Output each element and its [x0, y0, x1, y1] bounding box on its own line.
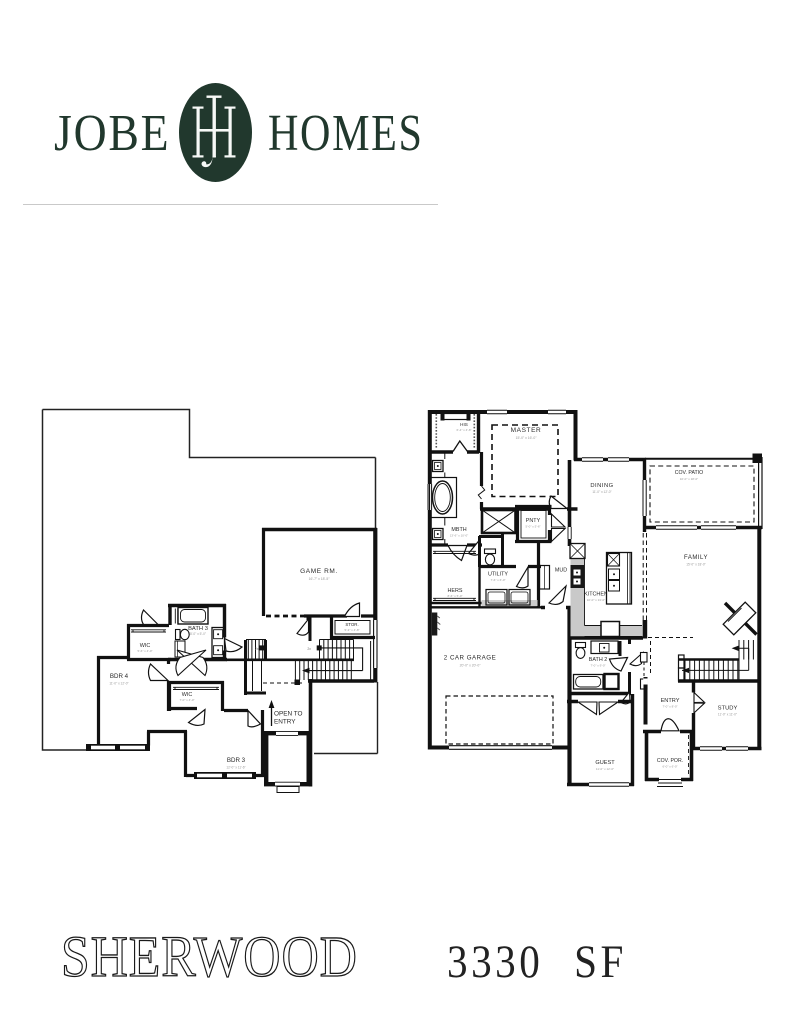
- svg-text:BDR 4: BDR 4: [110, 673, 129, 680]
- svg-text:5'-6" x 4'-0": 5'-6" x 4'-0": [137, 649, 152, 653]
- svg-text:7'-6" x 6'-0": 7'-6" x 6'-0": [490, 578, 505, 582]
- svg-text:11'-0" x 12'-0": 11'-0" x 12'-0": [596, 767, 614, 771]
- svg-text:UTILITY: UTILITY: [488, 572, 508, 578]
- svg-text:2 CAR GARAGE: 2 CAR GARAGE: [444, 655, 496, 662]
- svg-text:11'-0" x 11'-0": 11'-0" x 11'-0": [718, 713, 737, 717]
- svg-text:BDR 3: BDR 3: [227, 757, 246, 764]
- svg-text:COV. POR.: COV. POR.: [657, 758, 683, 764]
- svg-text:MASTER: MASTER: [511, 427, 542, 434]
- svg-text:HIS: HIS: [460, 422, 468, 427]
- svg-text:COV. PATIO: COV. PATIO: [675, 470, 703, 476]
- svg-text:2x: 2x: [255, 647, 259, 651]
- svg-text:PNTY: PNTY: [526, 518, 541, 524]
- svg-text:7'-0" x 8'-0": 7'-0" x 8'-0": [662, 705, 677, 709]
- svg-text:DINING: DINING: [590, 483, 613, 489]
- svg-text:KITCHEN: KITCHEN: [584, 592, 608, 598]
- svg-text:15'-0" x 18'-0": 15'-0" x 18'-0": [686, 563, 706, 567]
- svg-text:20'-0" x 20'-0": 20'-0" x 20'-0": [460, 664, 482, 668]
- svg-text:BATH 2: BATH 2: [589, 657, 607, 663]
- svg-text:12'-0" x 11'-6": 12'-0" x 11'-6": [226, 766, 245, 770]
- svg-text:STUDY: STUDY: [718, 706, 738, 712]
- svg-text:ENTRY: ENTRY: [274, 719, 296, 726]
- svg-text:GUEST: GUEST: [595, 760, 615, 766]
- svg-text:8'-6" x 5'-0": 8'-6" x 5'-0": [447, 594, 462, 598]
- svg-text:FAMILY: FAMILY: [684, 555, 708, 561]
- svg-text:7'-0" x 4'-0": 7'-0" x 4'-0": [179, 698, 194, 702]
- svg-text:MBTH: MBTH: [451, 527, 466, 533]
- svg-text:2x: 2x: [307, 647, 311, 651]
- svg-text:6'-4" x 4'-8": 6'-4" x 4'-8": [456, 428, 471, 432]
- svg-text:16'-7" x 18'-5": 16'-7" x 18'-5": [309, 577, 331, 581]
- svg-text:11'-0" x 12'-0": 11'-0" x 12'-0": [592, 490, 611, 494]
- svg-text:MUD: MUD: [555, 568, 567, 574]
- svg-text:5'-0" x 5'-6": 5'-0" x 5'-6": [525, 525, 540, 529]
- svg-text:7'-0" x 9'-0": 7'-0" x 9'-0": [590, 664, 605, 668]
- svg-text:10'-0" x 18'-0": 10'-0" x 18'-0": [680, 477, 698, 481]
- svg-text:5'-3" x 4'-8": 5'-3" x 4'-8": [344, 628, 359, 632]
- svg-text:GAME RM.: GAME RM.: [300, 568, 338, 575]
- svg-text:8'-0" x 5'-0": 8'-0" x 5'-0": [190, 632, 206, 636]
- svg-text:10'-0" x 13'-0": 10'-0" x 13'-0": [587, 598, 605, 602]
- svg-text:6'-0" x 6'-0": 6'-0" x 6'-0": [662, 765, 677, 769]
- svg-text:11'-0" x 12'-0": 11'-0" x 12'-0": [109, 682, 128, 686]
- svg-text:15'-0" x 16'-0": 15'-0" x 16'-0": [516, 436, 538, 440]
- svg-text:ENTRY: ENTRY: [661, 698, 680, 704]
- svg-text:OPEN TO: OPEN TO: [274, 711, 303, 718]
- svg-text:13'-6" x 10'-0": 13'-6" x 10'-0": [450, 534, 468, 538]
- svg-text:STOR.: STOR.: [345, 622, 358, 627]
